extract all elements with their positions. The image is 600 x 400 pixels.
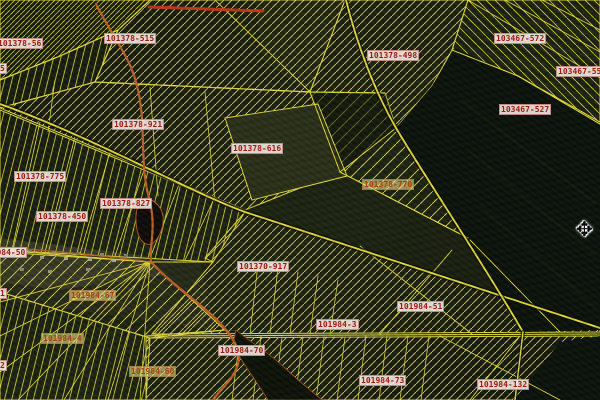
map-viewport[interactable]: 101378-56101378-515101378-498103467-5721… bbox=[0, 0, 600, 400]
satellite-map-layer bbox=[0, 0, 600, 400]
